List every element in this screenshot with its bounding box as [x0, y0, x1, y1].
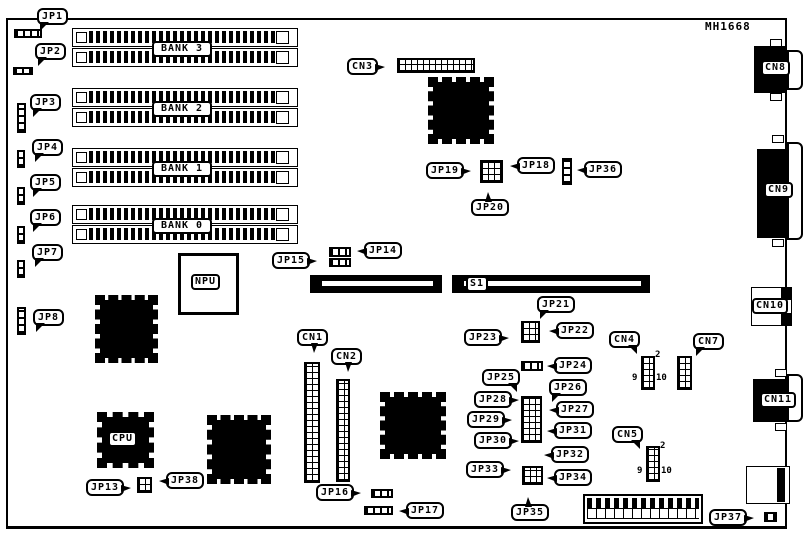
callout-tail [509, 438, 519, 445]
cn4-label-text: CN4 [614, 334, 635, 345]
jp37-label: JP37 [709, 509, 747, 526]
cn9-mount-tab-bottom [772, 239, 784, 247]
callout-tail [461, 168, 471, 175]
jp18-label: JP18 [517, 157, 555, 174]
cn5-pin-header [646, 446, 660, 482]
cn4-pin2-number: 2 [655, 351, 660, 360]
jp8-label-text: JP8 [38, 312, 59, 323]
cn11-label: CN11 [760, 392, 796, 408]
jp38-label: JP38 [166, 472, 204, 489]
cn2-pin-header [336, 379, 350, 482]
jp24-jumper-block [521, 361, 543, 371]
jp33-label: JP33 [466, 461, 504, 478]
jp13-label-text: JP13 [91, 482, 119, 493]
callout-tail [499, 335, 509, 342]
qfp-chip-top [428, 77, 494, 144]
jp38-label-text: JP38 [171, 475, 199, 486]
cn9-mount-tab-top [772, 135, 784, 143]
jp4-label-text: JP4 [37, 142, 58, 153]
keyboard-connector [746, 466, 790, 504]
jp25-jp32-jumper-block [521, 396, 542, 443]
bank3-label: BANK 3 [152, 41, 212, 57]
callout-tail [35, 153, 44, 162]
callout-tail [577, 167, 587, 174]
jp21-jumper-block [521, 321, 540, 343]
cpu-label: CPU [108, 431, 137, 447]
callout-tail [345, 362, 352, 372]
cn3-label-text: CN3 [352, 61, 373, 72]
jp23-label-text: JP23 [469, 332, 497, 343]
jp14-jumper-block [329, 247, 351, 257]
cn4-pin9-number: 9 [632, 374, 637, 383]
jp31-label-text: JP31 [559, 425, 587, 436]
jp22-label-text: JP22 [561, 325, 589, 336]
jp27-label-text: JP27 [561, 404, 589, 415]
jp2-label: JP2 [35, 43, 66, 60]
jp7-label-text: JP7 [37, 247, 58, 258]
callout-tail [509, 397, 519, 404]
jp36-jumper-block [562, 158, 572, 185]
callout-tail [631, 440, 640, 449]
jp3-jumper-block [17, 103, 26, 133]
jp34-label: JP34 [554, 469, 592, 486]
jp29-label-text: JP29 [472, 414, 500, 425]
cn7-label-text: CN7 [698, 336, 719, 347]
jp25-label-text: JP25 [487, 372, 515, 383]
cn8-mount-tab-bottom [770, 93, 782, 101]
cn5-label: CN5 [612, 426, 643, 443]
jp16-label: JP16 [316, 484, 354, 501]
cn10-label: CN10 [752, 298, 788, 314]
callout-tail [502, 417, 512, 424]
callout-tail [357, 248, 367, 255]
cn11-mount-tab-bottom [775, 423, 787, 431]
callout-tail [351, 490, 361, 497]
jp30-label: JP30 [474, 432, 512, 449]
jp16-label-text: JP16 [321, 487, 349, 498]
jp31-label: JP31 [554, 422, 592, 439]
jp21-label-text: JP21 [542, 299, 570, 310]
jp33-jumper-block [522, 466, 543, 485]
jp37-label-text: JP37 [714, 512, 742, 523]
cn11-mount-tab-top [775, 369, 787, 377]
jp1-jumper-block [14, 29, 42, 38]
jp8-jumper-block [17, 307, 26, 335]
cn1-label: CN1 [297, 329, 328, 346]
jp5-jumper-block [17, 187, 25, 205]
callout-tail [510, 163, 520, 170]
cn9-label: CN9 [764, 182, 793, 198]
jp5-label: JP5 [30, 174, 61, 191]
jp14-label-text: JP14 [369, 245, 397, 256]
callout-tail [375, 64, 385, 71]
board-part-number: MH1668 [705, 20, 751, 33]
jp23-label: JP23 [464, 329, 502, 346]
callout-tail [744, 515, 754, 522]
jp35-label-text: JP35 [516, 507, 544, 518]
jp15-label: JP15 [272, 252, 310, 269]
cn4-pin-header [641, 356, 655, 390]
callout-tail [501, 467, 511, 474]
jp30-label-text: JP30 [479, 435, 507, 446]
jp27-label: JP27 [556, 401, 594, 418]
jp35-label: JP35 [511, 504, 549, 521]
cn5-pin10-number: 10 [661, 467, 672, 476]
callout-tail [485, 192, 492, 202]
cn5-label-text: CN5 [617, 429, 638, 440]
jp3-label: JP3 [30, 94, 61, 111]
jp5-label-text: JP5 [35, 177, 56, 188]
jp6-jumper-block [17, 226, 25, 244]
jp13-label: JP13 [86, 479, 124, 496]
jp19-label: JP19 [426, 162, 464, 179]
cn5-pin2-number: 2 [660, 442, 665, 451]
callout-tail [33, 108, 42, 117]
qfp-chip-center [380, 392, 446, 459]
cn3-label: CN3 [347, 58, 378, 75]
bank2-label: BANK 2 [152, 101, 212, 117]
cn7-pin-header [677, 356, 692, 390]
jp26-label-text: JP26 [554, 382, 582, 393]
callout-tail [547, 428, 557, 435]
bank1-label: BANK 1 [152, 161, 212, 177]
jp3-label-text: JP3 [35, 97, 56, 108]
jp8-label: JP8 [33, 309, 64, 326]
jp16-jumper-block [371, 489, 393, 498]
jp4-jumper-block [17, 150, 25, 168]
jp1-label: JP1 [37, 8, 68, 25]
jp14-label: JP14 [364, 242, 402, 259]
jp21-label: JP21 [537, 296, 575, 313]
jp33-label-text: JP33 [471, 464, 499, 475]
expansion-slot [310, 275, 442, 293]
callout-tail [696, 347, 705, 356]
jp20-label-text: JP20 [476, 202, 504, 213]
jp28-label: JP28 [474, 391, 512, 408]
jp24-label: JP24 [554, 357, 592, 374]
callout-tail [544, 452, 554, 459]
callout-tail [547, 475, 557, 482]
jp7-label: JP7 [32, 244, 63, 261]
motherboard-diagram: MH1668 BANK 3 BANK 2 BANK 1 BANK 0 JP1 J… [0, 0, 807, 539]
jp32-label-text: JP32 [556, 449, 584, 460]
jp17-jumper-block [364, 506, 393, 515]
jp19-label-text: JP19 [431, 165, 459, 176]
jp37-jumper-block [764, 512, 777, 522]
callout-tail [508, 383, 517, 392]
callout-tail [525, 497, 532, 507]
jp2-label-text: JP2 [40, 46, 61, 57]
callout-tail [38, 57, 47, 66]
callout-tail [549, 407, 559, 414]
jp29-label: JP29 [467, 411, 505, 428]
jp17-label: JP17 [406, 502, 444, 519]
callout-tail [33, 223, 42, 232]
jp36-label: JP36 [584, 161, 622, 178]
bank0-label: BANK 0 [152, 218, 212, 234]
qfp-chip-bottom-left [207, 415, 271, 484]
cn1-pin-header [304, 362, 320, 483]
jp28-label-text: JP28 [479, 394, 507, 405]
callout-tail [36, 323, 45, 332]
cn1-label-text: CN1 [302, 332, 323, 343]
jp6-label: JP6 [30, 209, 61, 226]
callout-tail [121, 485, 131, 492]
jp19-jumper-block [480, 160, 503, 183]
jp18-label-text: JP18 [522, 160, 550, 171]
callout-tail [33, 188, 42, 197]
cn4-label: CN4 [609, 331, 640, 348]
callout-tail [159, 478, 169, 485]
jp24-label-text: JP24 [559, 360, 587, 371]
callout-tail [311, 343, 318, 353]
s1-label: S1 [466, 276, 488, 292]
jp17-label-text: JP17 [411, 505, 439, 516]
cn8-label: CN8 [761, 60, 790, 76]
cn5-pin9-number: 9 [637, 467, 642, 476]
jp20-label: JP20 [471, 199, 509, 216]
callout-tail [399, 508, 409, 515]
callout-tail [307, 258, 317, 265]
jp22-label: JP22 [556, 322, 594, 339]
jp26-label: JP26 [549, 379, 587, 396]
cn7-label: CN7 [693, 333, 724, 350]
cn2-label: CN2 [331, 348, 362, 365]
cn4-pin10-number: 10 [656, 374, 667, 383]
jp4-label: JP4 [32, 139, 63, 156]
jp36-label-text: JP36 [589, 164, 617, 175]
callout-tail [35, 258, 44, 267]
jp1-label-text: JP1 [42, 11, 63, 22]
npu-label: NPU [191, 274, 220, 290]
jp32-label: JP32 [551, 446, 589, 463]
callout-tail [628, 345, 637, 354]
jp34-label-text: JP34 [559, 472, 587, 483]
jp25-label: JP25 [482, 369, 520, 386]
cn2-label-text: CN2 [336, 351, 357, 362]
jp6-label-text: JP6 [35, 212, 56, 223]
qfp-chip-left [95, 295, 158, 363]
jp13-jumper-block [137, 477, 152, 493]
jp2-jumper-block [13, 67, 33, 75]
callout-tail [40, 22, 49, 31]
jp15-label-text: JP15 [277, 255, 305, 266]
callout-tail [540, 310, 549, 319]
cn3-pin-header [397, 58, 475, 73]
power-connector [583, 494, 703, 524]
callout-tail [547, 363, 557, 370]
jp7-jumper-block [17, 260, 25, 278]
jp15-jumper-block [329, 258, 351, 267]
callout-tail [549, 328, 559, 335]
